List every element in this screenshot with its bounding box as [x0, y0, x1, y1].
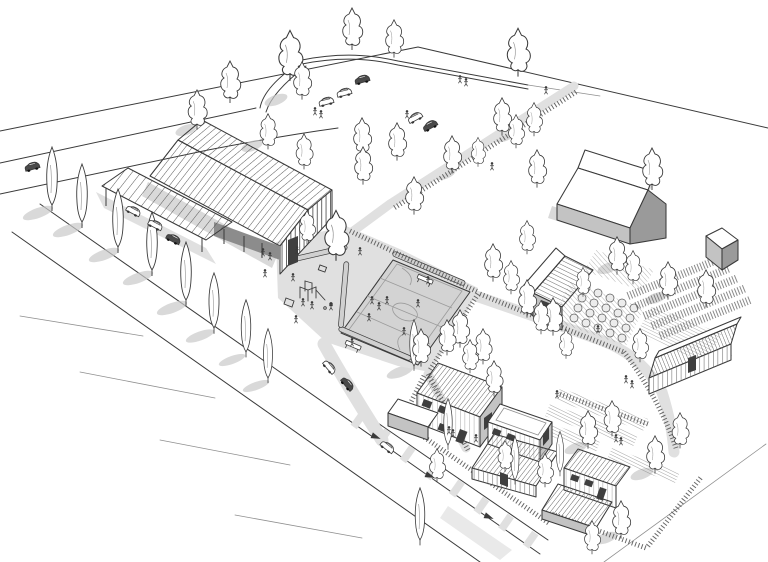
- sketch-canvas: [0, 0, 768, 562]
- long-barn-door: [688, 355, 696, 373]
- barn-door: [288, 236, 298, 266]
- site-illustration: [0, 0, 768, 562]
